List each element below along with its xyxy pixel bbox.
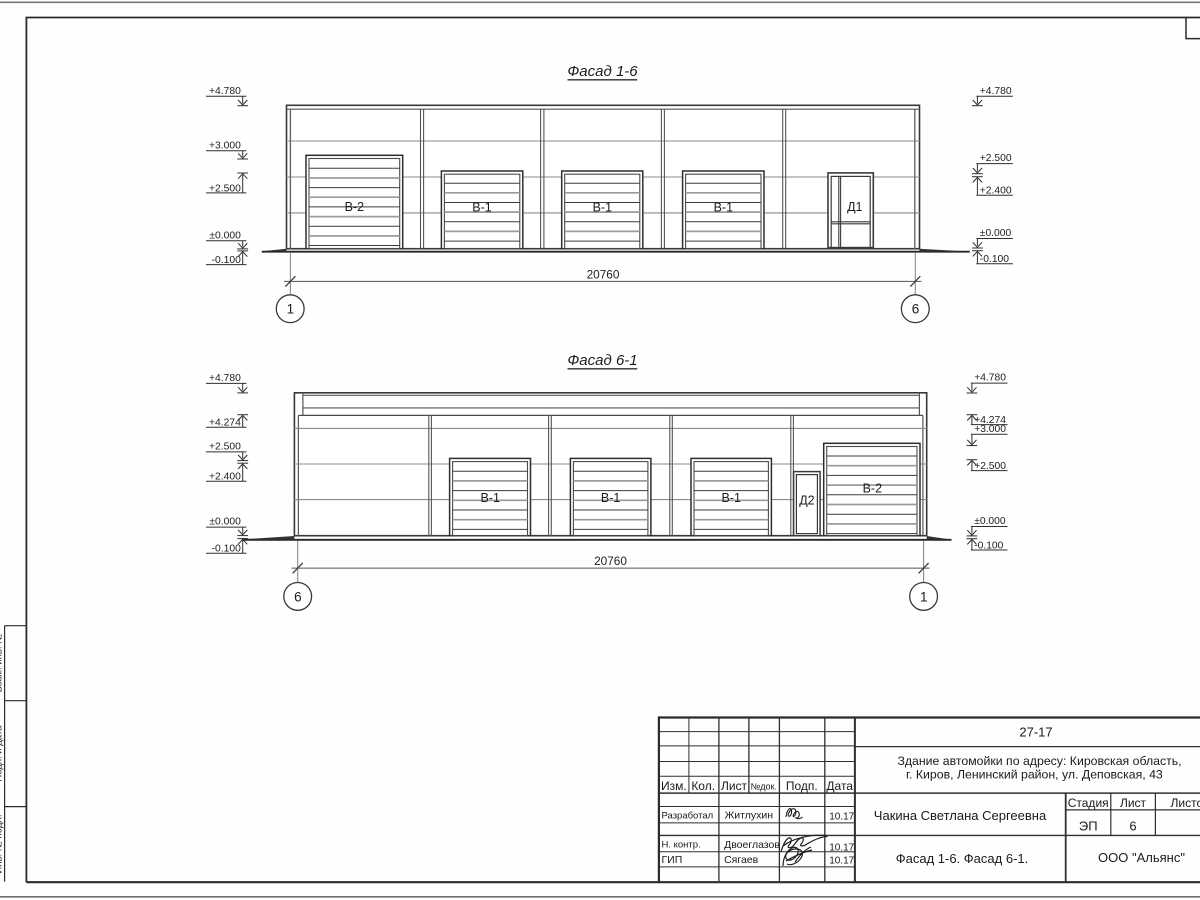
svg-text:+4.780: +4.780 — [974, 373, 1006, 384]
svg-text:г. Киров, Ленинский район, ул.: г. Киров, Ленинский район, ул. Деповская… — [906, 768, 1163, 782]
svg-text:Фасад 1-6. Фасад 6-1.: Фасад 1-6. Фасад 6-1. — [896, 851, 1029, 866]
svg-text:Д2: Д2 — [799, 493, 814, 507]
svg-text:20760: 20760 — [594, 554, 627, 568]
svg-text:Фасад 1-6: Фасад 1-6 — [567, 63, 638, 80]
svg-text:В-2: В-2 — [345, 200, 365, 214]
svg-text:ООО "Альянс": ООО "Альянс" — [1098, 850, 1185, 865]
svg-text:27-17: 27-17 — [1019, 725, 1052, 740]
svg-text:В-1: В-1 — [593, 200, 613, 214]
svg-text:±0.000: ±0.000 — [209, 230, 241, 241]
svg-text:№док.: №док. — [751, 781, 777, 791]
svg-text:±0.000: ±0.000 — [974, 516, 1006, 527]
svg-text:+2.500: +2.500 — [980, 153, 1012, 164]
svg-text:+4.780: +4.780 — [209, 373, 241, 384]
svg-text:-0.100: -0.100 — [212, 255, 241, 266]
svg-text:+2.500: +2.500 — [209, 183, 241, 194]
svg-text:В-1: В-1 — [714, 200, 734, 214]
svg-text:+2.500: +2.500 — [209, 442, 241, 453]
svg-text:+2.400: +2.400 — [209, 472, 241, 483]
svg-text:+4.780: +4.780 — [209, 86, 241, 97]
svg-text:Взам. инв. №: Взам. инв. № — [0, 634, 5, 693]
svg-text:Инв. № подл.: Инв. № подл. — [0, 814, 5, 873]
svg-text:В-1: В-1 — [721, 491, 741, 505]
svg-text:10.17: 10.17 — [829, 812, 854, 823]
svg-text:+2.400: +2.400 — [980, 186, 1012, 197]
svg-text:20760: 20760 — [587, 267, 620, 281]
svg-text:+4.274: +4.274 — [209, 418, 241, 429]
svg-text:Кол.: Кол. — [691, 779, 715, 793]
svg-text:Житлухин: Житлухин — [725, 810, 774, 822]
svg-text:В-1: В-1 — [480, 491, 500, 505]
svg-text:6: 6 — [294, 589, 302, 604]
svg-text:Фасад 6-1: Фасад 6-1 — [567, 352, 637, 369]
svg-text:-0.100: -0.100 — [980, 254, 1009, 265]
svg-text:-0.100: -0.100 — [974, 540, 1003, 551]
svg-text:+4.780: +4.780 — [980, 86, 1012, 97]
svg-text:Изм.: Изм. — [661, 779, 687, 793]
svg-text:10.17: 10.17 — [829, 843, 854, 854]
svg-text:Подп.: Подп. — [786, 779, 818, 793]
svg-text:Стадия: Стадия — [1068, 796, 1109, 810]
svg-text:ЭП: ЭП — [1079, 819, 1098, 834]
svg-text:+3.000: +3.000 — [209, 140, 241, 151]
svg-text:Чакина Светлана Сергеевна: Чакина Светлана Сергеевна — [874, 808, 1047, 823]
svg-text:-0.100: -0.100 — [212, 544, 241, 555]
svg-text:В-2: В-2 — [863, 482, 883, 496]
svg-text:Сягаев: Сягаев — [724, 854, 759, 866]
svg-text:ГИП: ГИП — [662, 854, 683, 866]
svg-text:В-1: В-1 — [472, 200, 492, 214]
svg-text:Двоеглазов: Двоеглазов — [724, 839, 780, 851]
svg-text:Дата: Дата — [826, 779, 853, 793]
svg-text:Д1: Д1 — [847, 200, 862, 214]
svg-text:В-1: В-1 — [601, 491, 621, 505]
svg-text:10.17: 10.17 — [829, 856, 854, 867]
svg-text:6: 6 — [1129, 819, 1136, 834]
svg-text:Здание автомойки по адресу: Ки: Здание автомойки по адресу: Кировская об… — [897, 754, 1181, 768]
svg-text:1: 1 — [920, 589, 928, 604]
svg-text:±0.000: ±0.000 — [980, 228, 1012, 239]
svg-text:Разработал: Разработал — [662, 811, 714, 822]
svg-text:Листов: Листов — [1171, 796, 1200, 810]
svg-text:±0.000: ±0.000 — [209, 517, 241, 528]
svg-text:+2.500: +2.500 — [974, 461, 1006, 472]
svg-text:Лист: Лист — [721, 779, 748, 793]
svg-text:Лист: Лист — [1120, 796, 1147, 810]
svg-text:Подп. и дата: Подп. и дата — [0, 725, 5, 782]
svg-text:Н. контр.: Н. контр. — [662, 840, 701, 851]
svg-text:+3.000: +3.000 — [974, 424, 1006, 435]
svg-text:1: 1 — [287, 302, 295, 317]
svg-text:6: 6 — [912, 302, 920, 317]
